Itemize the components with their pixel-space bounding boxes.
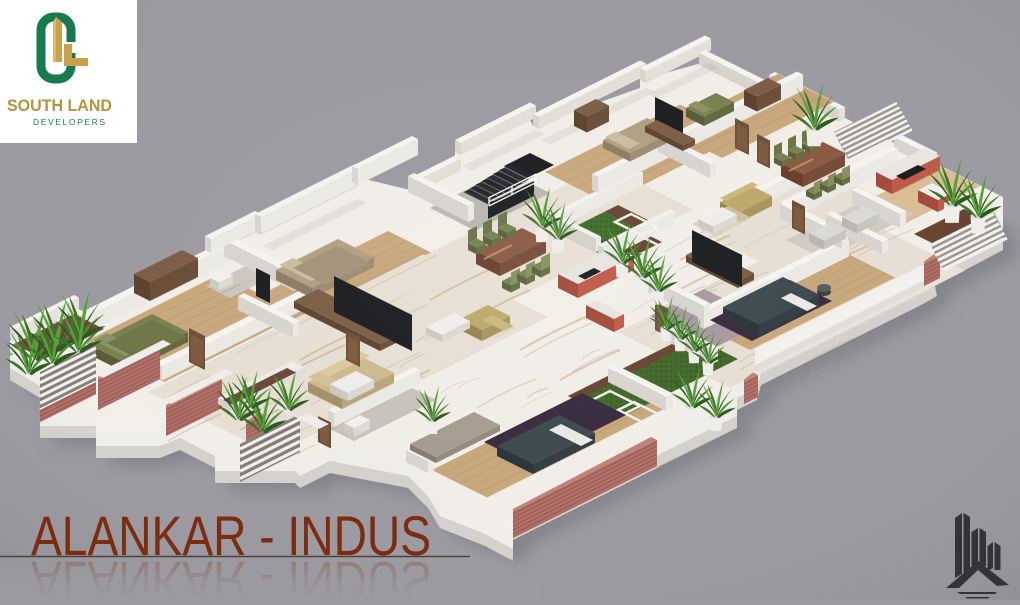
svg-text:SOUTH LAND: SOUTH LAND [7,96,112,115]
svg-text:DEVELOPERS: DEVELOPERS [33,117,107,127]
